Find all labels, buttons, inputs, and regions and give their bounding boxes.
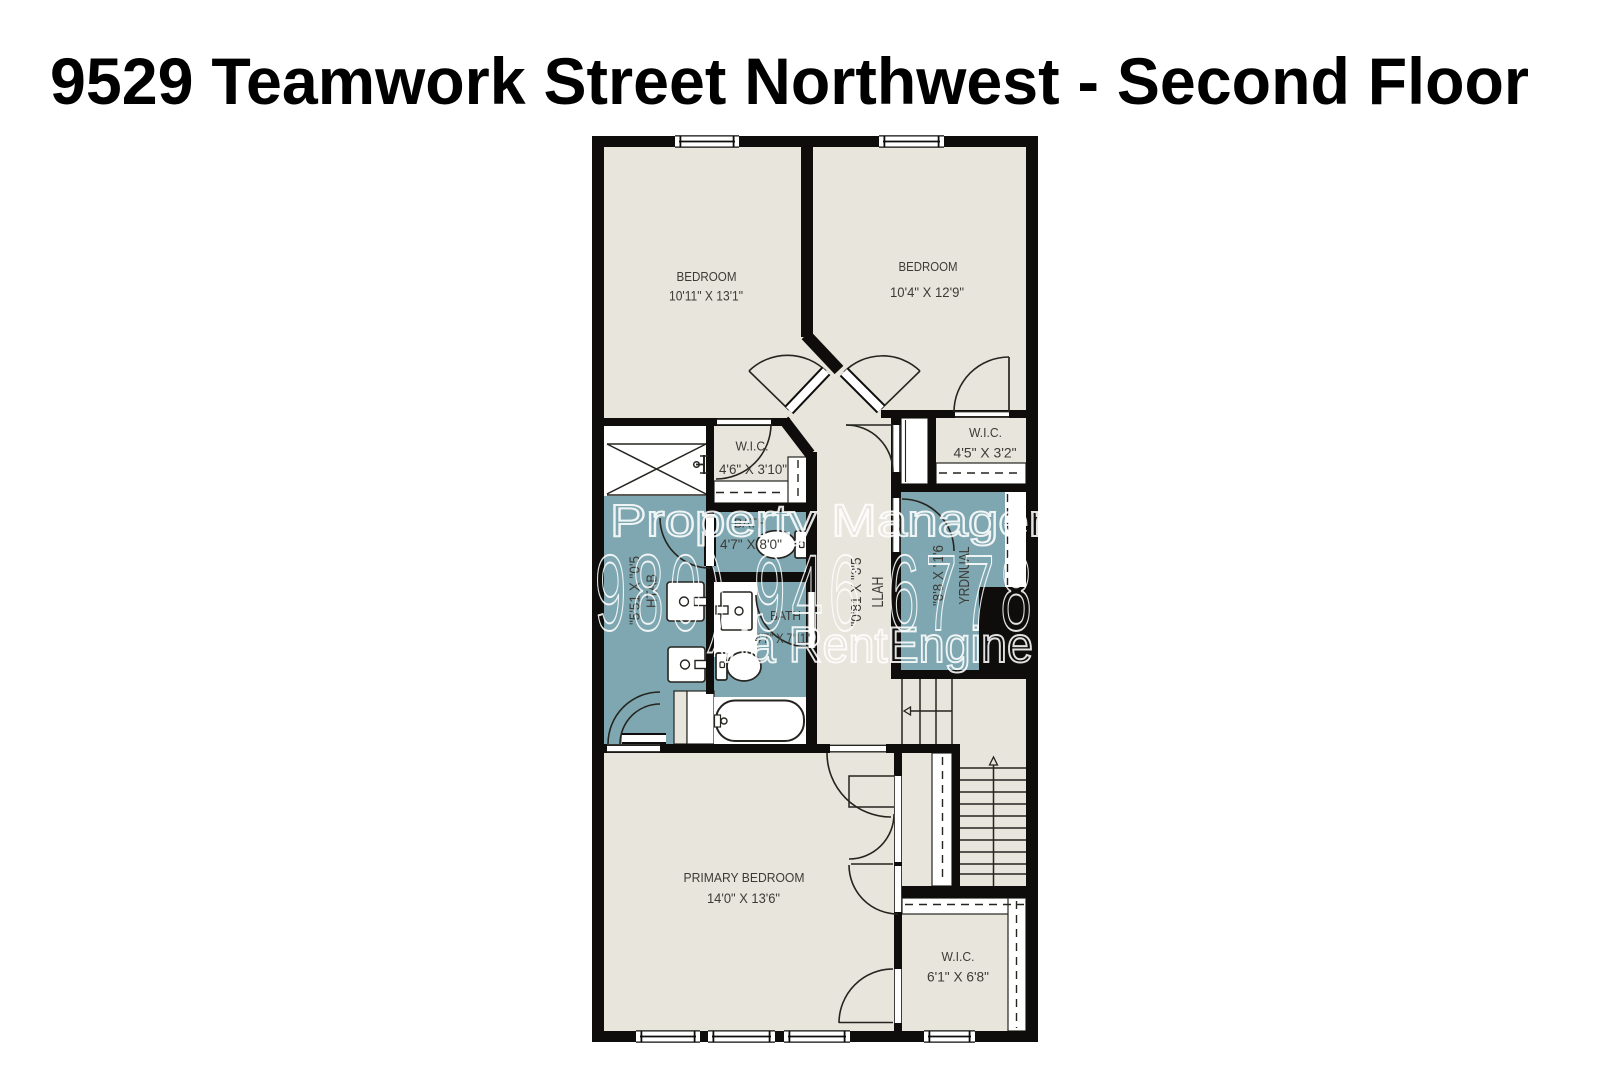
svg-text:4'5" X 3'2": 4'5" X 3'2": [954, 446, 1017, 461]
svg-text:W.I.C.: W.I.C.: [736, 439, 769, 454]
svg-text:via RentEngine: via RentEngine: [716, 617, 1033, 673]
svg-text:4'6" X 3'10": 4'6" X 3'10": [719, 462, 787, 477]
svg-text:10'4" X 12'9": 10'4" X 12'9": [890, 285, 964, 300]
svg-text:BEDROOM: BEDROOM: [899, 259, 958, 274]
svg-text:6'1" X 6'8": 6'1" X 6'8": [927, 970, 989, 985]
svg-text:14'0" X 13'6": 14'0" X 13'6": [707, 891, 780, 906]
svg-text:W.I.C.: W.I.C.: [969, 425, 1002, 440]
svg-text:W.I.C.: W.I.C.: [942, 949, 975, 964]
svg-text:PRIMARY BEDROOM: PRIMARY BEDROOM: [684, 870, 805, 885]
svg-text:BEDROOM: BEDROOM: [677, 269, 737, 284]
svg-text:10'11" X 13'1": 10'11" X 13'1": [669, 289, 743, 304]
svg-text:9529 Teamwork Street Northwest: 9529 Teamwork Street Northwest - Second …: [50, 44, 1529, 118]
